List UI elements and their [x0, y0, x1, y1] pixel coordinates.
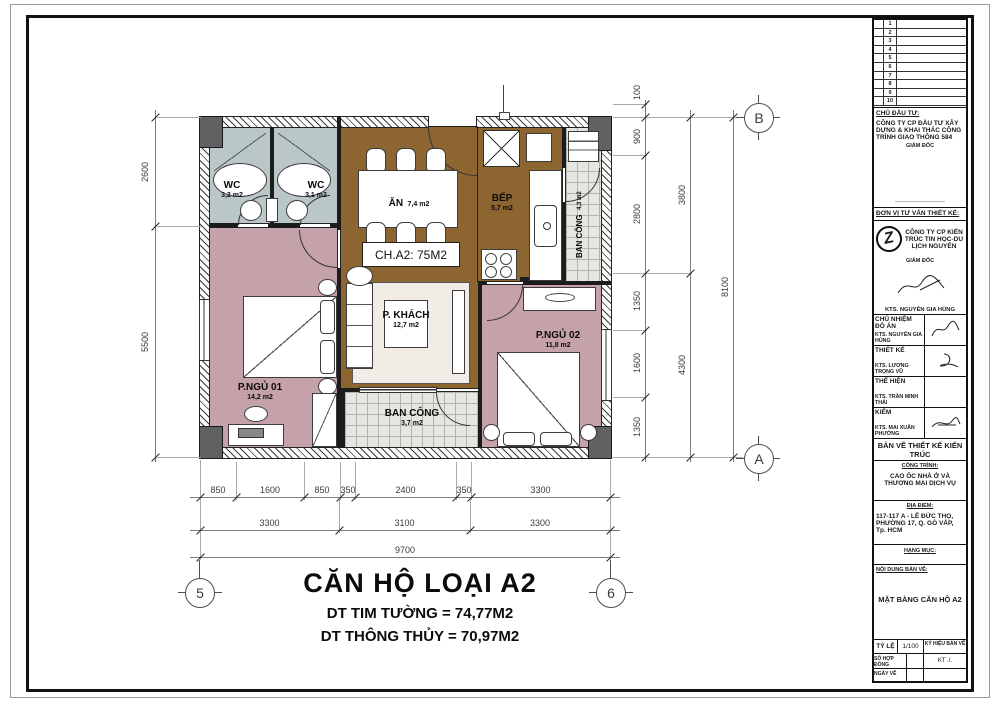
drawing-type: BẢN VẼ THIẾT KẾ KIẾN TRÚC: [874, 439, 966, 461]
caption-line2: DT THÔNG THỦY = 70,97M2: [240, 628, 600, 645]
dim-right-2800: 2800: [632, 192, 642, 236]
room-name: P.NGỦ 02: [526, 330, 590, 342]
floor-plan-sheet: WC 3,2 m2 WC 3,1 m2 ĂN 7,4 m2 BẾP 5,7 m2…: [0, 0, 1000, 701]
revision-no: 3: [884, 37, 897, 45]
dim-left-2600: 2600: [140, 148, 150, 196]
consultant-row: Z CÔNG TY CP KIẾN TRÚC TIN HỌC-DU LỊCH N…: [874, 221, 966, 257]
drawing-caption: CĂN HỘ LOẠI A2 DT TIM TƯỜNG = 74,77M2 DT…: [240, 568, 600, 645]
role-label: THỂ HIỆN: [875, 378, 923, 385]
project-label: CÔNG TRÌNH:: [876, 463, 964, 469]
dim-right-100: 100: [632, 80, 642, 104]
investor-label: CHỦ ĐẦU TƯ:: [876, 110, 964, 117]
wall-bottom: [200, 448, 611, 458]
room-area: 11,8 m2: [526, 342, 590, 350]
signature: [928, 351, 962, 371]
revision-no: 10: [884, 97, 897, 105]
grid-label: A: [754, 451, 763, 467]
investor-name: CÔNG TY CP ĐẦU TƯ XÂY DỰNG & KHAI THÁC C…: [876, 120, 964, 141]
revision-no: 6: [884, 63, 897, 71]
consultant-label: ĐƠN VỊ TƯ VẤN THIẾT KẾ:: [874, 208, 966, 221]
investor-role: GIÁM ĐỐC: [876, 143, 964, 149]
dim-850a: 850: [200, 485, 236, 495]
revision-no: 9: [884, 89, 897, 97]
project-name: CAO ỐC NHÀ Ở VÀ THƯƠNG MẠI DỊCH VỤ: [876, 473, 964, 487]
wall-wc-bottom-1: [209, 223, 238, 228]
dim-1600: 1600: [236, 485, 304, 495]
role-name: KTS. MAI XUÂN PHƯỞNG: [875, 425, 923, 437]
wardrobe: [312, 393, 337, 447]
room-area: 5,7 m2: [478, 205, 526, 213]
desk-chair: [244, 406, 268, 422]
dim-right-900: 900: [632, 120, 642, 152]
dim-2400: 2400: [355, 485, 456, 495]
unit-label-box: CH.A2: 75M2: [362, 242, 460, 267]
ext-line: [613, 117, 743, 118]
ext-line: [157, 457, 201, 458]
label-dining: ĂN 7,4 m2: [378, 192, 440, 211]
wall-wc-bottom-2: [268, 223, 300, 228]
ext-line: [157, 117, 201, 118]
room-name: BAN CÔNG: [378, 408, 446, 420]
stove-burner: [500, 266, 512, 278]
revision-no: 4: [884, 46, 897, 54]
caption-line1: DT TIM TƯỜNG = 74,77M2: [240, 605, 600, 622]
location-text: 117-117 A - LÊ ĐỨC THỌ, PHƯỜNG 17, Q. GÒ…: [876, 513, 964, 534]
room-area: 4,3 m2: [577, 192, 583, 211]
consultant-role: GIÁM ĐỐC: [875, 258, 965, 264]
wc1-sink: [240, 200, 262, 221]
project-section: CÔNG TRÌNH: CAO ỐC NHÀ Ở VÀ THƯƠNG MẠI D…: [874, 461, 966, 501]
wall-kitchen-balcony: [562, 127, 566, 168]
dim-right-8100: 8100: [720, 265, 730, 309]
unit-label: CH.A2: 75M2: [375, 248, 447, 262]
wall-left: [200, 117, 209, 458]
logo-letter: Z: [882, 229, 895, 249]
signature: [890, 275, 950, 297]
label-bedroom1: P.NGỦ 01 14,2 m2: [228, 382, 292, 402]
dim-line-left: [155, 110, 156, 462]
bed2-pillow: [540, 432, 572, 446]
contract-label: SỐ HỢP ĐỒNG: [874, 654, 907, 668]
desk-computer: [238, 428, 264, 438]
dim-9700: 9700: [200, 545, 610, 555]
signature: [928, 320, 962, 340]
dim-line-right-mid: [690, 110, 691, 462]
washing-machine: [568, 131, 599, 162]
room-name: WC: [212, 180, 252, 192]
sofa: [346, 283, 373, 369]
drawing-no-label: KÝ HIỆU BẢN VẼ: [924, 640, 966, 653]
ext-line: [157, 226, 201, 227]
shaft-box: [483, 130, 520, 167]
kt-cell-cont: [924, 669, 966, 682]
ext-line: [613, 330, 647, 331]
role-name: KTS. TRẦN MINH THÁI: [875, 394, 923, 406]
window-living-balcony: [360, 388, 436, 392]
drawing-no-value: KT ./.: [924, 654, 966, 668]
label-living: P. KHÁCH 12,7 m2: [374, 310, 438, 330]
wall-bedroom2-top-2: [523, 281, 611, 285]
bed1-pillow: [320, 300, 335, 334]
category-section: HẠNG MỤC:: [874, 545, 966, 565]
role-row-the-hien: THỂ HIỆN KTS. TRẦN MINH THÁI: [874, 377, 966, 408]
stove-burner: [500, 253, 512, 265]
dim-line-bottom-3: [190, 557, 620, 558]
wall-kitchen-balcony-2: [562, 202, 566, 281]
bed1-pillow: [320, 340, 335, 374]
revision-no: 8: [884, 80, 897, 88]
dim-3300b: 3300: [200, 518, 339, 528]
nightstand: [483, 424, 500, 441]
director-sign-section: GIÁM ĐỐC KTS. NGUYỄN GIA HÙNG: [874, 257, 966, 315]
ext-line: [613, 104, 647, 105]
dim-line-bottom-2: [190, 530, 620, 531]
content-label: NỘI DUNG BẢN VẼ:: [876, 567, 964, 573]
stove-burner: [485, 253, 497, 265]
dim-left-5500: 5500: [140, 318, 150, 366]
ext-line: [610, 460, 611, 560]
revision-no: 1: [884, 20, 897, 28]
label-balcony-right: BAN CÔNG 4,3 m2: [570, 190, 596, 260]
date-value: [907, 669, 924, 682]
window-bedroom1: [200, 300, 209, 360]
dim-right-1350b: 1350: [632, 407, 642, 447]
column-bottom-left: [200, 427, 222, 458]
nightstand: [318, 279, 337, 296]
room-name: ĂN: [389, 198, 403, 209]
dim-3300a: 3300: [471, 485, 610, 495]
dim-3300c: 3300: [470, 518, 610, 528]
ext-line: [613, 457, 743, 458]
window-bedroom2: [602, 330, 611, 400]
dresser-mirror: [545, 293, 575, 302]
label-kitchen: BẾP 5,7 m2: [478, 193, 526, 213]
room-area: 14,2 m2: [228, 394, 292, 402]
wall-bedroom2-left: [478, 281, 482, 448]
room-name: BẾP: [478, 193, 526, 205]
ext-line: [613, 155, 647, 156]
entry-axis-tick: [499, 112, 510, 120]
wall-bedroom1-right-upper: [337, 117, 341, 230]
sofa-end: [346, 266, 373, 286]
room-area: 3,2 m2: [212, 192, 252, 200]
grid-marker-6: 6: [596, 578, 626, 608]
dim-line-bottom-1: [190, 497, 620, 498]
room-area: 3,7 m2: [378, 420, 446, 428]
revision-no: 5: [884, 54, 897, 62]
grid-label: 6: [607, 585, 615, 601]
scale-value: 1/100: [898, 640, 924, 653]
room-name: BAN CÔNG: [575, 215, 584, 259]
grid-label: 5: [196, 585, 204, 601]
role-row-kiem: KIỂM KTS. MAI XUÂN PHƯỞNG: [874, 408, 966, 439]
category-label: HẠNG MỤC:: [904, 548, 936, 554]
grid-label: B: [754, 110, 763, 126]
investor-section: CHỦ ĐẦU TƯ: CÔNG TY CP ĐẦU TƯ XÂY DỰNG &…: [874, 108, 966, 208]
director-name: KTS. NGUYỄN GIA HÙNG: [875, 307, 965, 313]
wall-balcony-bottom-left: [341, 392, 345, 448]
ext-line: [613, 273, 692, 274]
date-label: NGÀY VẼ: [874, 669, 907, 682]
drawing-type-text: BẢN VẼ THIẾT KẾ KIẾN TRÚC: [874, 441, 966, 459]
dim-right-1600: 1600: [632, 343, 642, 383]
fridge: [526, 133, 552, 162]
room-area: 3,1 m2: [296, 192, 336, 200]
dim-right-1350a: 1350: [632, 281, 642, 321]
wc-toilet: [266, 198, 278, 222]
dim-right-3800: 3800: [677, 173, 687, 217]
stove-burner: [485, 266, 497, 278]
location-label: ĐỊA ĐIỂM:: [876, 503, 964, 509]
room-name: P. KHÁCH: [374, 310, 438, 322]
nightstand: [580, 424, 597, 441]
ext-line: [613, 397, 647, 398]
wc2-sink: [286, 200, 308, 221]
kitchen-faucet: [543, 222, 551, 230]
scale-table: TỶ LỆ 1/100 KÝ HIỆU BẢN VẼ SỐ HỢP ĐỒNG K…: [874, 639, 966, 681]
role-label: CHỦ NHIỆM ĐỒ ÁN: [875, 316, 923, 330]
company-logo: Z: [874, 224, 905, 255]
room-area: 12,7 m2: [374, 322, 438, 330]
revision-table: 1 2 3 4 5 6 7 8 9 10: [874, 20, 966, 108]
tv-cabinet: [452, 290, 465, 374]
consultant-name: CÔNG TY CP KIẾN TRÚC TIN HỌC-DU LỊCH NGU…: [902, 229, 964, 250]
content-text: MẶT BẰNG CĂN HỘ A2: [876, 595, 964, 604]
dim-3100: 3100: [339, 518, 470, 528]
content-section: NỘI DUNG BẢN VẼ: MẶT BẰNG CĂN HỘ A2: [874, 565, 966, 639]
label-balcony-bottom: BAN CÔNG 3,7 m2: [378, 408, 446, 428]
grid-marker-A: A: [744, 444, 774, 474]
revision-no: 7: [884, 72, 897, 80]
label-wc1: WC 3,2 m2: [212, 180, 252, 200]
contract-value: [907, 654, 924, 668]
role-label: KIỂM: [875, 409, 923, 416]
role-row-chu-nhiem: CHỦ NHIỆM ĐỒ ÁN KTS. NGUYỄN GIA HÙNG: [874, 315, 966, 346]
role-label: THIẾT KẾ: [875, 347, 923, 354]
role-name: KTS. NGUYỄN GIA HÙNG: [875, 332, 923, 344]
label-wc2: WC 3,1 m2: [296, 180, 336, 200]
dim-line-right-outer: [733, 110, 734, 462]
investor-dashes: ——————————: [874, 199, 966, 205]
wall-top-left: [200, 117, 428, 127]
location-section: ĐỊA ĐIỂM: 117-117 A - LÊ ĐỨC THỌ, PHƯỜNG…: [874, 501, 966, 545]
title-block: 1 2 3 4 5 6 7 8 9 10 CHỦ ĐẦU TƯ: CÔNG TY…: [872, 18, 968, 683]
scale-label: TỶ LỆ: [874, 640, 898, 653]
room-name: P.NGỦ 01: [228, 382, 292, 394]
role-row-thiet-ke: THIẾT KẾ KTS. LƯƠNG TRỌNG VŨ: [874, 346, 966, 377]
room-name: WC: [296, 180, 336, 192]
grid-marker-B: B: [744, 103, 774, 133]
consultant-label-text: ĐƠN VỊ TƯ VẤN THIẾT KẾ:: [876, 210, 959, 217]
revision-no: 2: [884, 29, 897, 37]
grid-marker-5: 5: [185, 578, 215, 608]
signature: [928, 413, 962, 433]
bed2-pillow: [503, 432, 535, 446]
wall-right: [602, 117, 611, 458]
label-bedroom2: P.NGỦ 02 11,8 m2: [526, 330, 590, 350]
role-name: KTS. LƯƠNG TRỌNG VŨ: [875, 363, 923, 375]
caption-title: CĂN HỘ LOẠI A2: [240, 568, 600, 599]
dim-right-4300: 4300: [677, 343, 687, 387]
room-area: 7,4 m2: [408, 201, 430, 208]
